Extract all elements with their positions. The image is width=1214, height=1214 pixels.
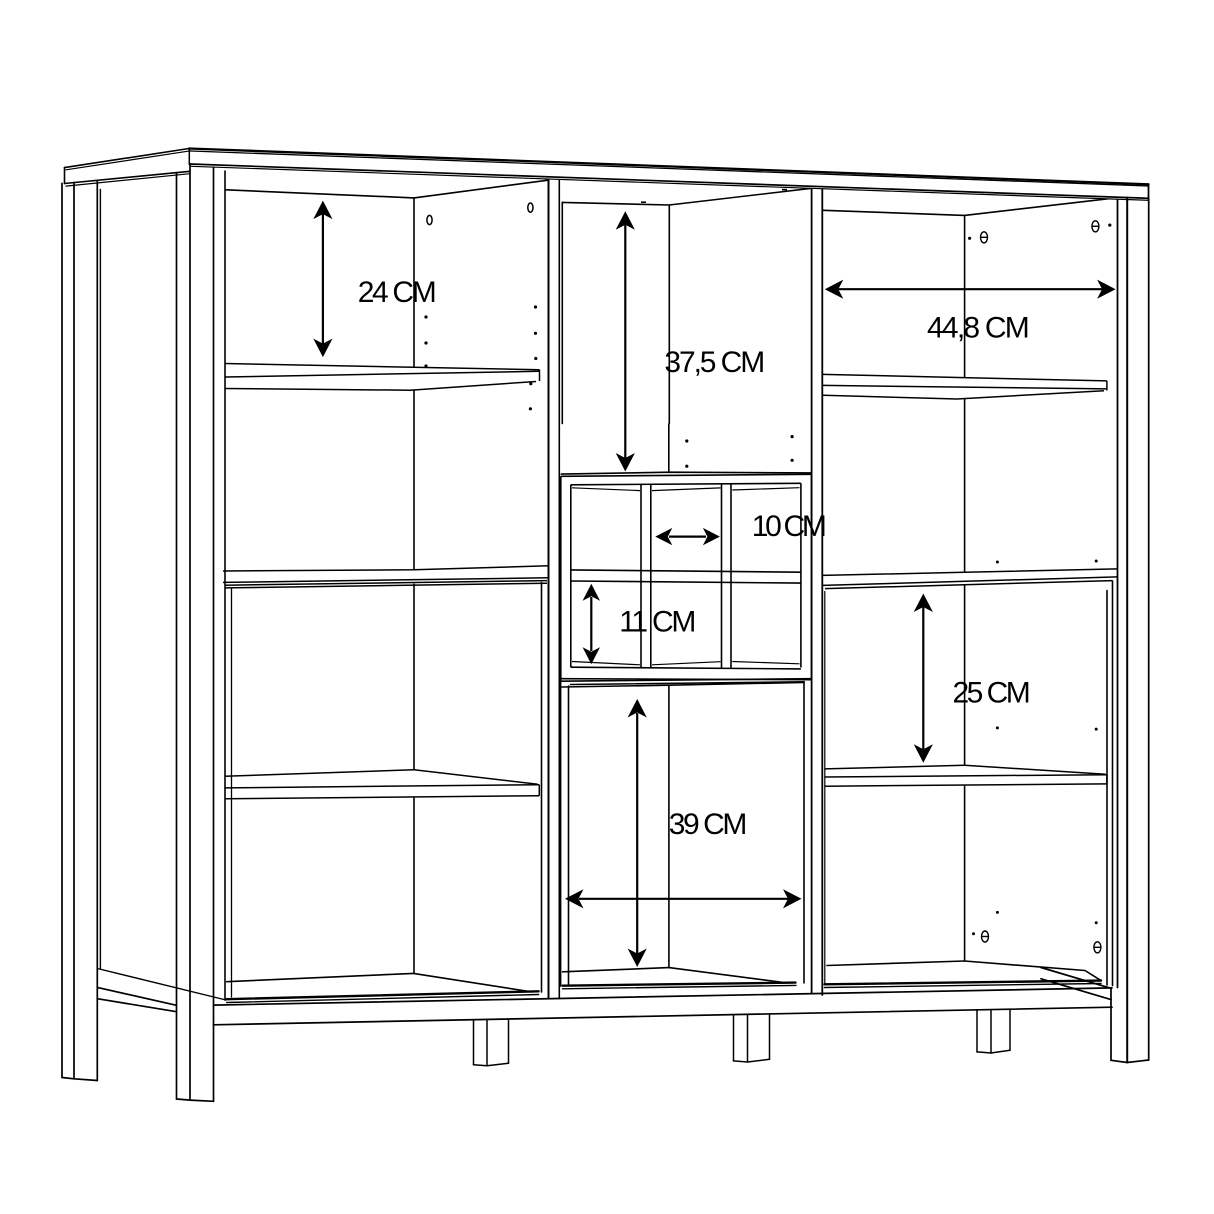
svg-text:11 CM: 11 CM xyxy=(619,606,696,639)
svg-text:25 CM: 25 CM xyxy=(953,677,1031,710)
svg-text:37,5 CM: 37,5 CM xyxy=(664,346,765,379)
svg-text:39 CM: 39 CM xyxy=(669,808,748,841)
svg-text:10 CM: 10 CM xyxy=(752,510,827,543)
svg-text:44,8 CM: 44,8 CM xyxy=(927,312,1030,345)
svg-text:24 CM: 24 CM xyxy=(358,276,437,309)
